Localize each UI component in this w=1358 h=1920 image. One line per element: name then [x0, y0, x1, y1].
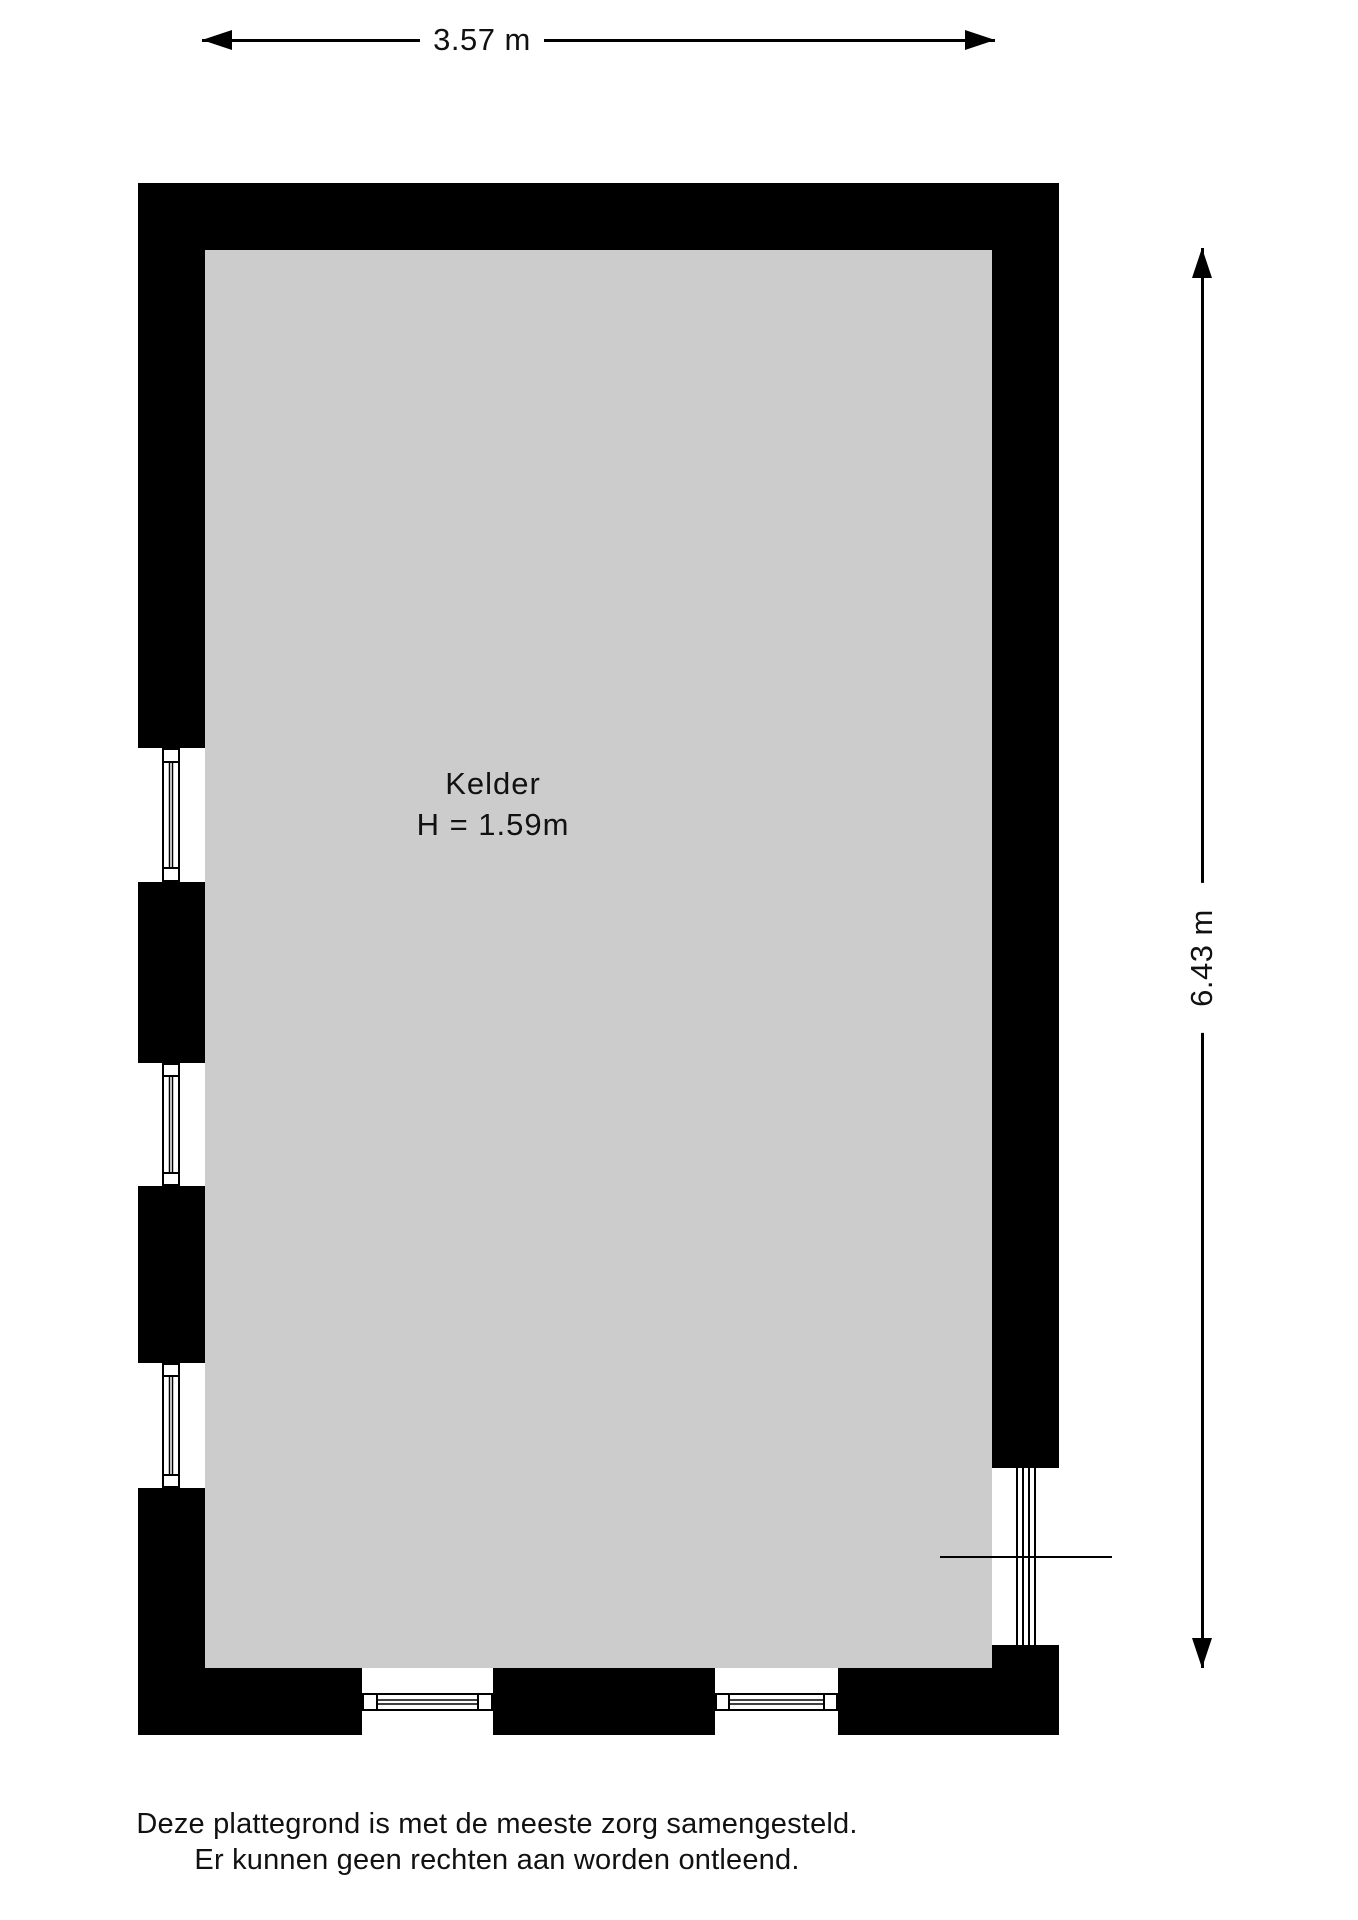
window-icon: [159, 748, 183, 882]
width-dimension-label: 3.57 m: [282, 18, 682, 62]
arrow-down-icon: [1192, 1638, 1212, 1668]
window-icon: [159, 1363, 183, 1488]
room-height-label: H = 1.59m: [293, 804, 693, 845]
room-name: Kelder: [293, 763, 693, 804]
room-label-group: Kelder H = 1.59m: [293, 763, 693, 845]
arrow-left-icon: [202, 30, 232, 50]
window-icon: [715, 1690, 838, 1714]
width-dimension-text: 3.57 m: [420, 22, 544, 57]
arrow-right-icon: [965, 30, 995, 50]
height-dimension-label: 6.43 m: [1180, 883, 1224, 1033]
section-marker-line: [940, 1556, 1112, 1558]
window-icon: [362, 1690, 493, 1714]
footer-disclaimer: Deze plattegrond is met de meeste zorg s…: [0, 1806, 994, 1878]
floor-area-kelder: [205, 250, 992, 1668]
disclaimer-line-2: Er kunnen geen rechten aan worden ontlee…: [0, 1842, 994, 1878]
floor-plan-page: 3.57 m 6.43 m: [0, 0, 1358, 1920]
disclaimer-line-1: Deze plattegrond is met de meeste zorg s…: [0, 1806, 994, 1842]
window-icon: [159, 1063, 183, 1186]
arrow-up-icon: [1192, 248, 1212, 278]
